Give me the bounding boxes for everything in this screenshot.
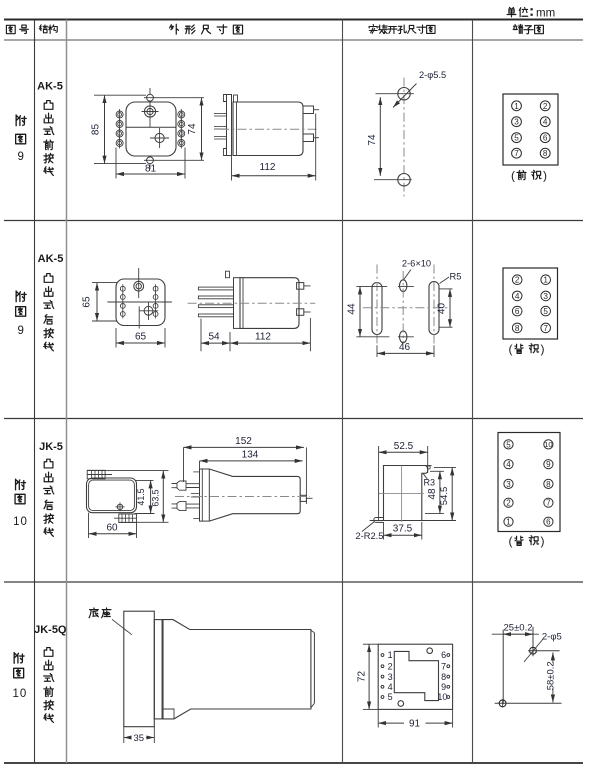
svg-text:48: 48 <box>427 488 438 500</box>
svg-text:35: 35 <box>134 733 145 744</box>
svg-text:9: 9 <box>17 151 23 163</box>
svg-text:8: 8 <box>515 324 520 333</box>
svg-text:8: 8 <box>441 672 446 682</box>
svg-text:5: 5 <box>506 440 511 449</box>
svg-text:25±0.2: 25±0.2 <box>504 622 533 633</box>
svg-text:5: 5 <box>514 134 519 143</box>
svg-text:74: 74 <box>367 134 378 146</box>
svg-text:40: 40 <box>437 303 448 315</box>
svg-text:R3: R3 <box>424 478 436 488</box>
svg-text:4: 4 <box>515 292 520 301</box>
svg-text:10: 10 <box>437 692 447 702</box>
svg-text:JK-5: JK-5 <box>39 441 63 453</box>
svg-text:(: ( <box>511 169 515 183</box>
svg-text:7: 7 <box>546 499 551 508</box>
svg-text:58±0.2: 58±0.2 <box>546 661 557 690</box>
svg-text:10: 10 <box>544 440 552 449</box>
svg-text:72: 72 <box>356 671 367 683</box>
svg-text:112: 112 <box>255 332 271 343</box>
svg-text:134: 134 <box>242 450 259 461</box>
svg-text:46: 46 <box>399 342 411 353</box>
svg-text:81: 81 <box>145 164 157 175</box>
svg-text:1: 1 <box>543 276 548 285</box>
svg-text:4: 4 <box>543 118 548 127</box>
svg-text:(: ( <box>509 342 513 356</box>
svg-text:): ) <box>543 169 547 183</box>
svg-text:44: 44 <box>347 303 358 315</box>
svg-text:6: 6 <box>546 518 551 527</box>
svg-text:4: 4 <box>506 460 511 469</box>
svg-text:mm: mm <box>536 7 555 19</box>
svg-text:63.5: 63.5 <box>151 489 161 506</box>
svg-text:112: 112 <box>260 162 276 173</box>
svg-text:41.5: 41.5 <box>136 488 146 505</box>
svg-text:54: 54 <box>208 332 220 343</box>
svg-text:1: 1 <box>506 518 511 527</box>
svg-text:2: 2 <box>506 499 511 508</box>
svg-text:5: 5 <box>388 692 393 702</box>
svg-text:2-φ5: 2-φ5 <box>542 631 562 642</box>
svg-text:85: 85 <box>91 124 102 136</box>
svg-text:10: 10 <box>13 688 28 700</box>
svg-text:2: 2 <box>543 102 548 111</box>
svg-text:7: 7 <box>543 324 548 333</box>
svg-text:6: 6 <box>441 650 446 660</box>
svg-text:2: 2 <box>515 276 520 285</box>
svg-text:AK-5: AK-5 <box>38 253 64 265</box>
svg-text:7: 7 <box>514 149 519 158</box>
svg-text:37.5: 37.5 <box>393 524 413 535</box>
svg-text:): ) <box>541 342 545 356</box>
svg-text:74: 74 <box>187 123 198 135</box>
svg-text:R5: R5 <box>450 272 462 282</box>
svg-text:6: 6 <box>543 134 548 143</box>
svg-text:(: ( <box>509 534 513 548</box>
svg-text:3: 3 <box>506 480 511 489</box>
svg-text:54.5: 54.5 <box>439 487 450 506</box>
svg-text:2: 2 <box>388 661 393 671</box>
svg-text:3: 3 <box>514 118 519 127</box>
svg-text:1: 1 <box>514 102 519 111</box>
svg-text:6: 6 <box>515 307 520 316</box>
svg-text:): ) <box>541 534 545 548</box>
svg-text:8: 8 <box>543 149 548 158</box>
svg-text:152: 152 <box>235 436 252 447</box>
svg-text:91: 91 <box>409 718 421 729</box>
svg-text:9: 9 <box>17 325 23 337</box>
svg-text:9: 9 <box>441 682 446 692</box>
svg-text:2-6×10: 2-6×10 <box>402 259 431 269</box>
svg-text:52.5: 52.5 <box>394 441 414 452</box>
svg-text:8: 8 <box>546 480 551 489</box>
svg-text:1: 1 <box>388 650 393 660</box>
svg-text:2-R2.5: 2-R2.5 <box>356 531 384 541</box>
svg-text:60: 60 <box>106 523 118 534</box>
svg-text:2-φ5.5: 2-φ5.5 <box>419 70 446 80</box>
svg-text:65: 65 <box>82 296 93 308</box>
svg-text:4: 4 <box>388 682 393 692</box>
svg-text:3: 3 <box>388 672 393 682</box>
svg-text:3: 3 <box>543 292 548 301</box>
svg-text:5: 5 <box>543 307 548 316</box>
svg-text:9: 9 <box>546 460 551 469</box>
svg-text:65: 65 <box>135 332 147 343</box>
svg-text:10: 10 <box>13 516 28 528</box>
svg-text:7: 7 <box>441 661 446 671</box>
svg-text:AK-5: AK-5 <box>37 81 63 93</box>
svg-text:JK-5Q: JK-5Q <box>34 624 67 636</box>
